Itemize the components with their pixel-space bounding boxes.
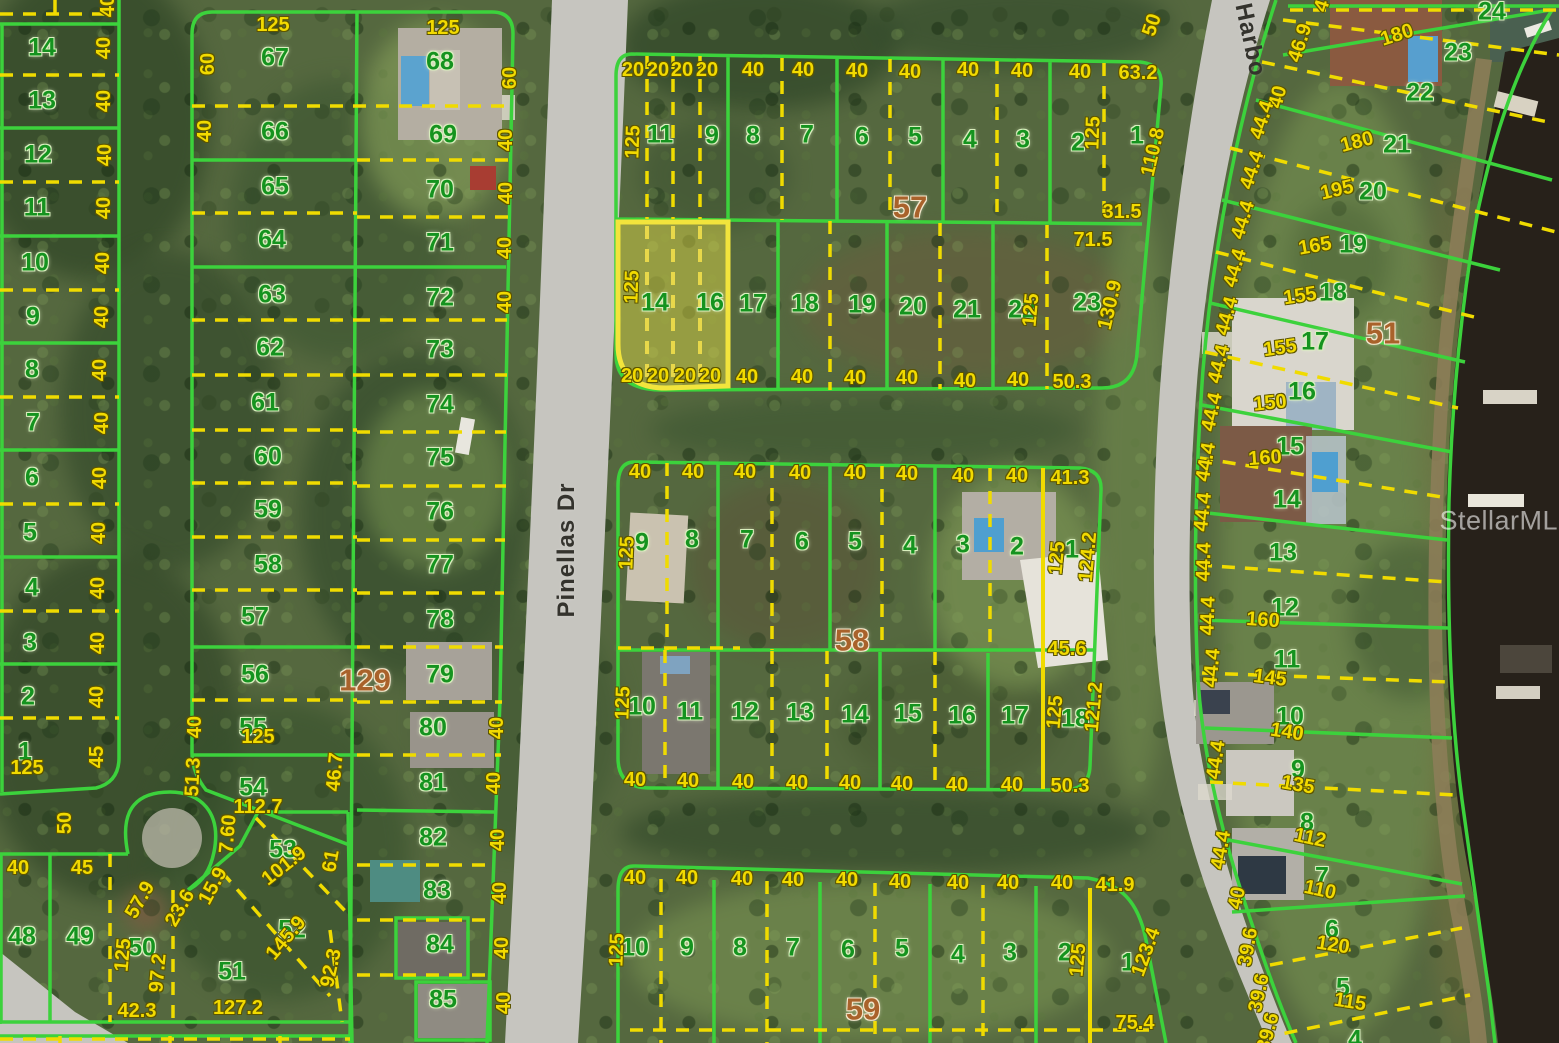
dimension-label: 40 [496,129,516,151]
dimension-label: 195 [1318,177,1355,204]
dimension-label: 40 [88,577,108,599]
dimension-label: 140 [1269,720,1305,745]
lot-number-label: 4 [25,576,39,601]
dimension-label: 40 [94,90,114,112]
lot-number-label: 74 [426,393,454,418]
dimension-label: 125 [1020,293,1043,328]
lot-number-label: 75 [426,446,454,471]
lot-number-label: 13 [1269,541,1297,566]
dimension-label: 41.9 [1096,875,1135,895]
lot-number-label: 3 [23,631,37,656]
dimension-label: 123.4 [1128,925,1164,979]
dimension-label: 44.4 [1197,596,1218,636]
dimension-label: 40 [624,770,646,790]
dimension-label: 20 [647,60,669,80]
dimension-label: 44.4 [1205,343,1234,386]
lot-number-label: 10 [21,251,49,276]
lot-number-label: 71 [426,231,454,256]
lot-number-label: 6 [795,530,809,555]
lot-number-label: 16 [948,704,976,729]
dimension-label: 40 [682,462,704,482]
dimension-label: 125 [1044,695,1067,730]
dimension-label: 20 [671,60,693,80]
dimension-label: 135 [1280,772,1316,797]
dimension-label: 44.4 [1198,391,1226,433]
dimension-label: 45 [87,746,107,768]
lot-number-label: 49 [66,925,94,950]
dimension-label: 45 [71,858,93,878]
dimension-label: 40 [789,463,811,483]
dimension-label: 40 [495,237,515,259]
dimension-label: 40 [839,773,861,793]
lot-number-label: 5 [895,937,909,962]
dimension-label: 44.4 [1208,829,1234,871]
dimension-label: 51.3 [182,757,204,797]
lot-number-label: 11 [24,196,50,221]
lot-number-label: 9 [680,936,694,961]
lot-number-label: 19 [848,293,876,318]
dimension-label: 40 [87,686,107,708]
dimension-label: 40 [782,870,804,890]
lot-number-label: 84 [426,933,454,958]
lot-number-label: 85 [429,988,457,1013]
dimension-label: 44.4 [1200,648,1223,689]
dimension-label: 40 [836,870,858,890]
dimension-label: 155 [1262,336,1298,360]
dimension-label: 110 [1302,877,1338,903]
dimension-label: 127.2 [213,998,263,1018]
dimension-label: 40 [95,144,115,166]
lot-number-label: 70 [426,178,454,203]
street-name-label: Harbo [1231,1,1270,79]
plat-map: 4014131211109876543214040404040404040404… [0,0,1559,1043]
dimension-label: 40 [488,829,508,851]
dimension-label: 40 [494,992,514,1014]
dimension-label: 39.6 [1253,1011,1282,1043]
lot-number-label: 14 [1273,488,1301,513]
dimension-label: 40 [1051,873,1073,893]
dimension-label: 40 [896,464,918,484]
lot-number-label: 17 [1001,704,1029,729]
dimension-label: 115 [1333,990,1368,1015]
dimension-label: 40 [94,197,114,219]
dimension-label: 40 [896,368,918,388]
dimension-label: 40 [195,120,215,142]
dimension-label: 40 [1225,885,1249,911]
dimension-label: 40 [492,937,512,959]
dimension-label: 180 [1378,20,1416,49]
dimension-label: 145 [1252,666,1288,690]
lot-number-label: 6 [855,125,869,150]
dimension-label: 40 [899,62,921,82]
lot-number-label: 5 [23,521,37,546]
lot-number-label: 15 [894,702,922,727]
dimension-label: 39.6 [1245,972,1273,1014]
dimension-label: 42.3 [118,1001,157,1021]
lot-number-label: 13 [786,701,814,726]
dimension-label: 155 [1282,284,1318,309]
lot-number-label: 4 [903,534,917,559]
dimension-label: 40 [1007,370,1029,390]
dimension-label: 160 [1246,609,1281,631]
lot-number-label: 62 [256,336,284,361]
block-number-label: 57 [893,192,927,223]
dimension-label: 44.4 [1236,148,1267,191]
lot-number-label: 14 [841,703,869,728]
lot-number-label: 59 [254,498,282,523]
lot-number-label: 2 [21,685,35,710]
dimension-label: 40 [484,772,504,794]
lot-number-label: 5 [908,125,922,150]
lot-number-label: 57 [241,605,269,630]
dimension-label: 125 [256,15,289,35]
watermark: StellarMLS [1439,508,1559,535]
lot-number-label: 8 [746,124,760,149]
dimension-label: 40 [487,717,507,739]
dimension-label: 40 [1001,775,1023,795]
lot-number-label: 20 [899,295,927,320]
dimension-label: 15.9 [195,864,231,908]
dimension-label: 40 [496,182,516,204]
dimension-label: 40 [98,0,118,17]
lot-number-label: 66 [261,120,289,145]
dimension-label: 160 [1248,447,1283,469]
lot-number-label: 2 [1010,535,1024,560]
dimension-label: 50 [1139,11,1165,38]
lot-number-label: 3 [1016,128,1030,153]
lot-number-label: 64 [258,228,286,253]
dimension-label: 44.4 [1203,739,1228,780]
lot-number-label: 21 [953,298,981,323]
dimension-label: 20 [699,366,721,386]
block-number-label: 58 [835,625,869,656]
lot-number-label: 81 [419,771,447,796]
dimension-label: 40 [92,412,112,434]
dimension-label: 57.9 [122,878,159,922]
block-number-label: 129 [339,665,391,696]
dimension-label: 40 [90,467,110,489]
dimension-label: 40 [731,869,753,889]
dimension-label: 20 [674,366,696,386]
dimension-label: 20 [696,60,718,80]
lot-number-label: 7 [26,411,40,436]
lot-number-label: 76 [426,500,454,525]
lot-number-label: 77 [426,553,454,578]
lot-number-label: 56 [241,663,269,688]
dimension-label: 44.4 [1246,98,1277,141]
dimension-label: 40 [844,463,866,483]
lot-number-label: 8 [685,528,699,553]
lot-number-label: 7 [786,936,800,961]
dimension-label: 39.6 [1235,926,1261,968]
lot-number-label: 11 [677,700,703,725]
dimension-label: 125 [612,686,633,720]
lot-number-label: 12 [731,700,759,725]
lot-number-label: 80 [419,716,447,741]
dimension-label: 40 [844,368,866,388]
lot-number-label: 4 [963,128,977,153]
dimension-label: 50 [55,812,75,834]
dimension-label: 7.60 [216,814,239,855]
dimension-label: 44.4 [1191,492,1215,533]
dimension-label: 20 [621,366,643,386]
dimension-label: 40 [495,291,515,313]
lot-number-label: 61 [251,391,279,416]
lot-number-label: 68 [426,50,454,75]
block-number-label: 59 [846,994,880,1025]
lot-number-label: 3 [1003,941,1017,966]
lot-number-label: 8 [25,358,39,383]
dimension-label: 125 [616,536,637,570]
dimension-label: 125 [1082,116,1103,150]
dimension-label: 40 [736,367,758,387]
lot-number-label: 16 [1288,380,1316,405]
dimension-label: 40 [676,868,698,888]
dimension-label: 124.2 [1076,531,1100,583]
dimension-label: 40 [946,775,968,795]
dimension-label: 40 [92,306,112,328]
lot-number-label: 12 [24,143,52,168]
dimension-label: 44.4 [1212,295,1241,338]
dimension-label: 75.4 [1116,1013,1155,1033]
map-labels: 4014131211109876543214040404040404040404… [0,0,1559,1043]
dimension-label: 180 [1338,128,1375,156]
dimension-label: 165 [1297,233,1333,258]
block-number-label: 51 [1366,318,1400,349]
dimension-label: 125 [1067,943,1090,978]
dimension-label: 97.2 [146,953,169,994]
dimension-label: 60 [198,53,218,75]
lot-number-label: 1 [1130,124,1144,149]
lot-number-label: 18 [1319,281,1347,306]
dimension-label: 40 [952,466,974,486]
lot-number-label: 19 [1339,233,1367,258]
lot-number-label: 6 [841,938,855,963]
dimension-label: 40 [1011,61,1033,81]
lot-number-label: 48 [8,925,36,950]
lot-number-label: 3 [956,533,970,558]
lot-number-label: 69 [429,123,457,148]
lot-number-label: 17 [1301,330,1329,355]
dimension-label: 40 [93,252,113,274]
lot-number-label: 24 [1478,0,1506,25]
lot-number-label: 6 [25,466,39,491]
lot-number-label: 23 [1444,41,1472,66]
dimension-label: 40 [889,872,911,892]
dimension-label: 63.2 [1119,63,1158,83]
dimension-label: 120 [1315,933,1351,958]
dimension-label: 125 [622,125,643,159]
lot-number-label: 63 [258,283,286,308]
lot-number-label: 82 [419,826,447,851]
dimension-label: 125 [112,938,135,973]
dimension-label: 40 [957,60,979,80]
dimension-label: 40 [490,882,510,904]
dimension-label: 46.9 [1284,21,1315,64]
lot-number-label: 9 [26,305,40,330]
dimension-label: 20 [622,60,644,80]
dimension-label: 40 [791,367,813,387]
dimension-label: 40 [732,772,754,792]
lot-number-label: 5 [848,530,862,555]
dimension-label: 20 [647,366,669,386]
lot-number-label: 21 [1383,133,1411,158]
dimension-label: 40 [677,771,699,791]
lot-number-label: 14 [641,291,669,316]
lot-number-label: 67 [261,46,289,71]
dimension-label: 130.9 [1095,278,1126,331]
dimension-label: 44.4 [1193,542,1214,582]
dimension-label: 40 [7,858,29,878]
lot-number-label: 17 [739,292,767,317]
street-name-label: Pinellas Dr [555,482,579,617]
lot-number-label: 13 [28,89,56,114]
dimension-label: 4 [1311,0,1333,14]
dimension-label: 61 [319,848,343,873]
dimension-label: 40 [90,359,110,381]
lot-number-label: 4 [951,943,965,968]
lot-number-label: 73 [426,338,454,363]
dimension-label: 40 [792,60,814,80]
dimension-label: 31.5 [1103,202,1142,222]
dimension-label: 40 [1069,62,1091,82]
lot-number-label: 7 [800,123,814,148]
dimension-label: 150 [1252,391,1287,414]
dimension-label: 50.3 [1053,372,1092,392]
dimension-label: 92.3 [317,947,345,989]
dimension-label: 40 [94,37,114,59]
lot-number-label: 58 [254,553,282,578]
lot-number-label: 20 [1359,180,1387,205]
dimension-label: 40 [89,522,109,544]
dimension-label: 40 [846,61,868,81]
dimension-label: 46.7 [323,752,346,793]
lot-number-label: 22 [1406,81,1434,106]
dimension-label: 40 [88,632,108,654]
lot-number-label: 7 [740,528,754,553]
dimension-label: 45.6 [1048,639,1087,659]
dimension-label: 40 [629,462,651,482]
dimension-label: 44.4 [1228,198,1259,241]
lot-number-label: 72 [426,286,454,311]
lot-number-label: 9 [705,124,719,149]
lot-number-label: 4 [1348,1028,1362,1043]
dimension-label: 44.4 [1220,247,1250,290]
dimension-label: 40 [185,716,205,738]
dimension-label: 41.3 [1051,468,1090,488]
dimension-label: 40 [997,873,1019,893]
dimension-label: 60 [500,67,520,89]
dimension-label: 23.6 [162,886,199,930]
dimension-label: 40 [742,60,764,80]
dimension-label: 125 [10,758,43,778]
dimension-label: 44.4 [1193,441,1219,483]
dimension-label: 121.2 [1082,681,1106,733]
dimension-label: 40 [734,462,756,482]
lot-number-label: 78 [426,608,454,633]
lot-number-label: 18 [791,292,819,317]
dimension-label: 40 [954,371,976,391]
lot-number-label: 60 [254,445,282,470]
lot-number-label: 65 [261,175,289,200]
dimension-label: 112 [1292,825,1328,851]
dimension-label: 125 [241,727,274,747]
dimension-label: 125 [606,933,627,967]
dimension-label: 40 [891,774,913,794]
lot-number-label: 14 [28,36,56,61]
dimension-label: 112.7 [234,797,283,817]
dimension-label: 71.5 [1074,230,1113,250]
dimension-label: 40 [624,868,646,888]
lot-number-label: 11 [647,123,673,148]
dimension-label: 125 [426,18,459,38]
lot-number-label: 79 [426,663,454,688]
dimension-label: 125 [1046,541,1069,576]
dimension-label: 40 [947,873,969,893]
dimension-label: 125 [621,270,642,304]
dimension-label: 40 [1006,466,1028,486]
lot-number-label: 16 [696,291,724,316]
lot-number-label: 8 [733,936,747,961]
dimension-label: 50.3 [1051,776,1090,796]
lot-number-label: 51 [218,960,246,985]
dimension-label: 40 [786,773,808,793]
lot-number-label: 83 [423,879,451,904]
